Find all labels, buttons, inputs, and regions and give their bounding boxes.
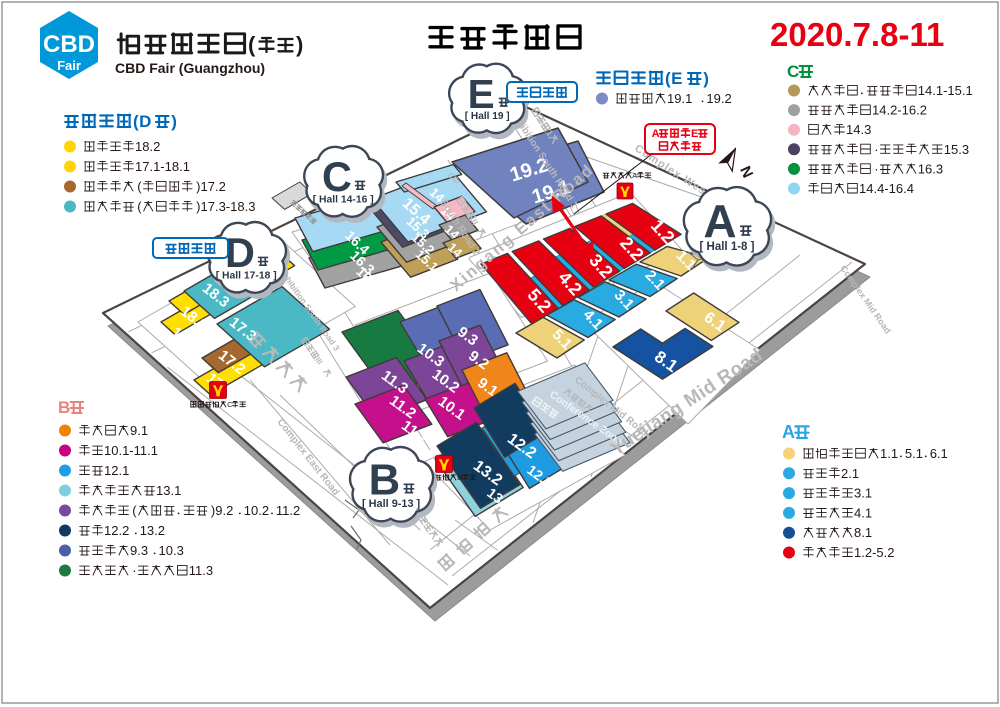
svg-text:E: E <box>468 71 495 117</box>
svg-text:A: A <box>703 195 736 247</box>
svg-text:11.2: 11.2 <box>276 503 300 518</box>
svg-text:9.1: 9.1 <box>130 423 148 438</box>
svg-text:1.1: 1.1 <box>880 446 898 461</box>
svg-text:(E: (E <box>665 69 683 88</box>
svg-text:3.1: 3.1 <box>854 486 872 501</box>
svg-text:9.2: 9.2 <box>215 503 233 518</box>
svg-text:[ Hall 1-8 ]: [ Hall 1-8 ] <box>700 241 755 253</box>
svg-text:12.2: 12.2 <box>104 523 129 538</box>
svg-text:2.1: 2.1 <box>841 466 859 481</box>
svg-text:14.1-15.1: 14.1-15.1 <box>918 83 973 98</box>
svg-text:CBD Fair (Guangzhou): CBD Fair (Guangzhou) <box>115 60 265 76</box>
svg-text:17.1-18.1: 17.1-18.1 <box>135 159 190 174</box>
svg-text:13.2: 13.2 <box>140 523 165 538</box>
svg-text:): ) <box>296 32 303 57</box>
svg-text:(: ( <box>137 179 142 194</box>
svg-text:19.1: 19.1 <box>667 91 692 106</box>
svg-text:): ) <box>171 112 177 131</box>
svg-text:10.3: 10.3 <box>159 543 184 558</box>
svg-text:·: · <box>874 142 878 157</box>
svg-text:14.4-16.4: 14.4-16.4 <box>859 181 914 196</box>
svg-text:Fair: Fair <box>57 58 81 73</box>
svg-text:C: C <box>227 400 233 409</box>
svg-text:[ Hall 14-16 ]: [ Hall 14-16 ] <box>313 195 374 206</box>
svg-text:9.3: 9.3 <box>130 543 148 558</box>
svg-text:C: C <box>787 62 800 81</box>
svg-text:·: · <box>874 161 878 176</box>
svg-text:A: A <box>632 171 637 180</box>
svg-text:10.1-11.1: 10.1-11.1 <box>104 443 158 458</box>
svg-text:10.2: 10.2 <box>244 503 269 518</box>
svg-text:(: ( <box>132 503 137 518</box>
svg-text:17.3-18.3: 17.3-18.3 <box>201 199 256 214</box>
svg-text:19.2: 19.2 <box>706 91 731 106</box>
svg-text:): ) <box>703 69 709 88</box>
svg-text:C: C <box>322 154 352 200</box>
svg-text:(: ( <box>137 199 142 214</box>
svg-text:A: A <box>652 128 660 140</box>
svg-text:1.2-5.2: 1.2-5.2 <box>854 545 894 560</box>
svg-text:CBD: CBD <box>43 31 95 58</box>
svg-text:[ Hall 9-13 ]: [ Hall 9-13 ] <box>362 498 421 510</box>
svg-text:11.3: 11.3 <box>189 563 213 578</box>
svg-text:D: D <box>225 230 255 276</box>
svg-text:B: B <box>58 398 71 417</box>
svg-text:8.1: 8.1 <box>854 525 872 540</box>
svg-text:4.1: 4.1 <box>854 505 872 520</box>
svg-text:16.3: 16.3 <box>918 161 943 176</box>
svg-text:5.1: 5.1 <box>905 446 923 461</box>
svg-text:(D: (D <box>133 112 152 131</box>
svg-text:·: · <box>132 563 136 578</box>
svg-text:E: E <box>691 128 698 140</box>
svg-text:B: B <box>457 473 462 482</box>
svg-text:[ Hall 19 ]: [ Hall 19 ] <box>465 111 510 122</box>
svg-text:6.1: 6.1 <box>930 446 948 461</box>
svg-text:[ Hall 17-18 ]: [ Hall 17-18 ] <box>216 271 277 282</box>
svg-text:18.2: 18.2 <box>135 139 160 154</box>
svg-text:13.1: 13.1 <box>156 483 181 498</box>
svg-text:12.1: 12.1 <box>104 463 129 478</box>
svg-text:14.3: 14.3 <box>846 122 871 137</box>
svg-text:17.2: 17.2 <box>201 179 226 194</box>
svg-text:15.3: 15.3 <box>944 142 969 157</box>
svg-text:2020.7.8-11: 2020.7.8-11 <box>770 16 944 53</box>
svg-text:(: ( <box>248 32 256 57</box>
svg-text:A: A <box>782 422 796 442</box>
svg-text:14.2-16.2: 14.2-16.2 <box>872 103 927 118</box>
